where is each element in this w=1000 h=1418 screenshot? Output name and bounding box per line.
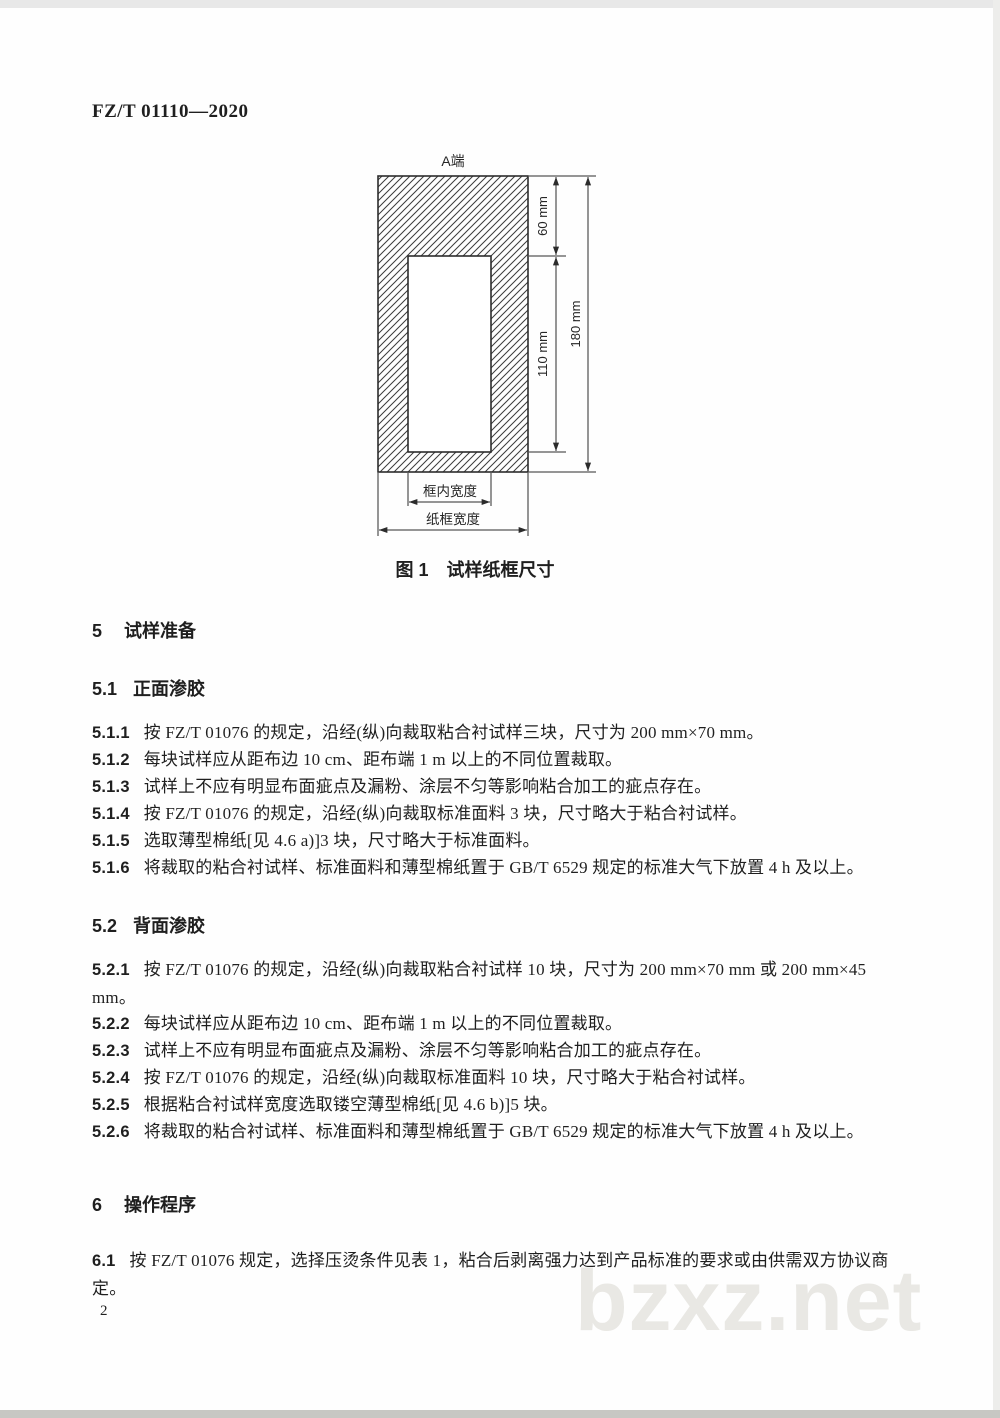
section-5-2-heading: 5.2背面渗胶 [92,913,910,940]
clause-text: 将裁取的粘合衬试样、标准面料和薄型棉纸置于 GB/T 6529 规定的标准大气下… [144,858,864,877]
clause-text: 按 FZ/T 01076 的规定，沿经(纵)向裁取粘合衬试样三块，尺寸为 200… [144,723,764,742]
clause-text: 按 FZ/T 01076 的规定，沿经(纵)向裁取标准面料 3 块，尺寸略大于粘… [144,804,747,823]
section-title: 背面渗胶 [133,916,205,936]
scan-edge-bottom [0,1410,1000,1418]
document-page: bzxz.net FZ/T 01110—2020 A端 60 mm 110 mm… [0,0,1000,1418]
clause-number: 5.2.2 [92,1015,130,1033]
clause-5-1-3: 5.1.3试样上不应有明显布面疵点及漏粉、涂层不匀等影响粘合加工的疵点存在。 [92,773,910,801]
clause-number: 5.2.4 [92,1069,130,1087]
clause-text: 每块试样应从距布边 10 cm、距布端 1 m 以上的不同位置裁取。 [144,1014,623,1033]
page-number: 2 [100,1303,108,1320]
frame-inner-window [408,256,491,452]
clause-5-2-3: 5.2.3试样上不应有明显布面疵点及漏粉、涂层不匀等影响粘合加工的疵点存在。 [92,1037,910,1065]
clause-5-2-4: 5.2.4按 FZ/T 01076 的规定，沿经(纵)向裁取标准面料 10 块，… [92,1064,910,1092]
clause-number: 5.1.5 [92,832,130,850]
outer-width-label: 纸框宽度 [426,511,480,527]
clause-number: 5.2.5 [92,1096,130,1114]
clause-number: 5.1.4 [92,805,130,823]
clause-text: 根据粘合衬试样宽度选取镂空薄型棉纸[见 4.6 b)]5 块。 [144,1095,558,1114]
scan-edge-top [0,0,1000,8]
section-title: 正面渗胶 [133,679,205,699]
section-number: 5 [92,621,102,641]
clause-text: 选取薄型棉纸[见 4.6 a)]3 块，尺寸略大于标准面料。 [144,831,540,850]
dim-label-110mm: 110 mm [535,331,550,377]
clause-text: 试样上不应有明显布面疵点及漏粉、涂层不匀等影响粘合加工的疵点存在。 [144,1041,712,1060]
standard-number-header: FZ/T 01110—2020 [92,101,249,123]
clause-5-2-6: 5.2.6将裁取的粘合衬试样、标准面料和薄型棉纸置于 GB/T 6529 规定的… [92,1118,910,1146]
section-number: 5.2 [92,916,117,936]
clause-5-1-5: 5.1.5选取薄型棉纸[见 4.6 a)]3 块，尺寸略大于标准面料。 [92,827,910,855]
clause-number: 5.2.1 [92,961,130,979]
clause-text: 试样上不应有明显布面疵点及漏粉、涂层不匀等影响粘合加工的疵点存在。 [144,777,712,796]
inner-width-label: 框内宽度 [423,483,477,499]
clause-number: 5.1.2 [92,751,130,769]
clause-text: 按 FZ/T 01076 的规定，沿经(纵)向裁取标准面料 10 块，尺寸略大于… [144,1068,756,1087]
clause-5-1-4: 5.1.4按 FZ/T 01076 的规定，沿经(纵)向裁取标准面料 3 块，尺… [92,800,910,828]
clause-number: 5.2.3 [92,1042,130,1060]
clause-5-2-2: 5.2.2每块试样应从距布边 10 cm、距布端 1 m 以上的不同位置裁取。 [92,1010,910,1038]
clause-6-1: 6.1按 FZ/T 01076 规定，选择压烫条件见表 1，粘合后剥离强力达到产… [92,1247,910,1302]
section-title: 试样准备 [124,621,196,641]
figure-end-label: A端 [441,153,464,169]
clause-5-2-5: 5.2.5根据粘合衬试样宽度选取镂空薄型棉纸[见 4.6 b)]5 块。 [92,1091,910,1119]
dim-label-180mm: 180 mm [568,301,583,348]
section-title: 操作程序 [124,1195,196,1215]
dim-label-60mm: 60 mm [535,196,550,236]
clause-5-2-1: 5.2.1按 FZ/T 01076 的规定，沿经(纵)向裁取粘合衬试样 10 块… [92,956,910,1011]
scan-edge-right [993,0,1000,1418]
clause-5-1-1: 5.1.1按 FZ/T 01076 的规定，沿经(纵)向裁取粘合衬试样三块，尺寸… [92,719,910,747]
section-5-heading: 5试样准备 [92,618,910,645]
clause-number: 5.1.1 [92,724,130,742]
figure-diagram: A端 60 mm 110 mm 180 mm 框内宽度 纸框宽度 [340,148,610,548]
section-6-heading: 6操作程序 [92,1192,910,1219]
clause-number: 6.1 [92,1252,116,1270]
section-5-1-heading: 5.1正面渗胶 [92,676,910,703]
clause-text: 将裁取的粘合衬试样、标准面料和薄型棉纸置于 GB/T 6529 规定的标准大气下… [144,1122,864,1141]
section-number: 5.1 [92,679,117,699]
clause-number: 5.2.6 [92,1123,130,1141]
clause-text: 每块试样应从距布边 10 cm、距布端 1 m 以上的不同位置裁取。 [144,750,623,769]
clause-number: 5.1.6 [92,859,130,877]
clause-number: 5.1.3 [92,778,130,796]
section-number: 6 [92,1195,102,1215]
clause-text: 按 FZ/T 01076 规定，选择压烫条件见表 1，粘合后剥离强力达到产品标准… [92,1251,889,1298]
clause-5-1-2: 5.1.2每块试样应从距布边 10 cm、距布端 1 m 以上的不同位置裁取。 [92,746,910,774]
clause-text: 按 FZ/T 01076 的规定，沿经(纵)向裁取粘合衬试样 10 块，尺寸为 … [92,960,866,1007]
figure-caption: 图 1 试样纸框尺寸 [320,556,630,582]
clause-5-1-6: 5.1.6将裁取的粘合衬试样、标准面料和薄型棉纸置于 GB/T 6529 规定的… [92,854,910,882]
